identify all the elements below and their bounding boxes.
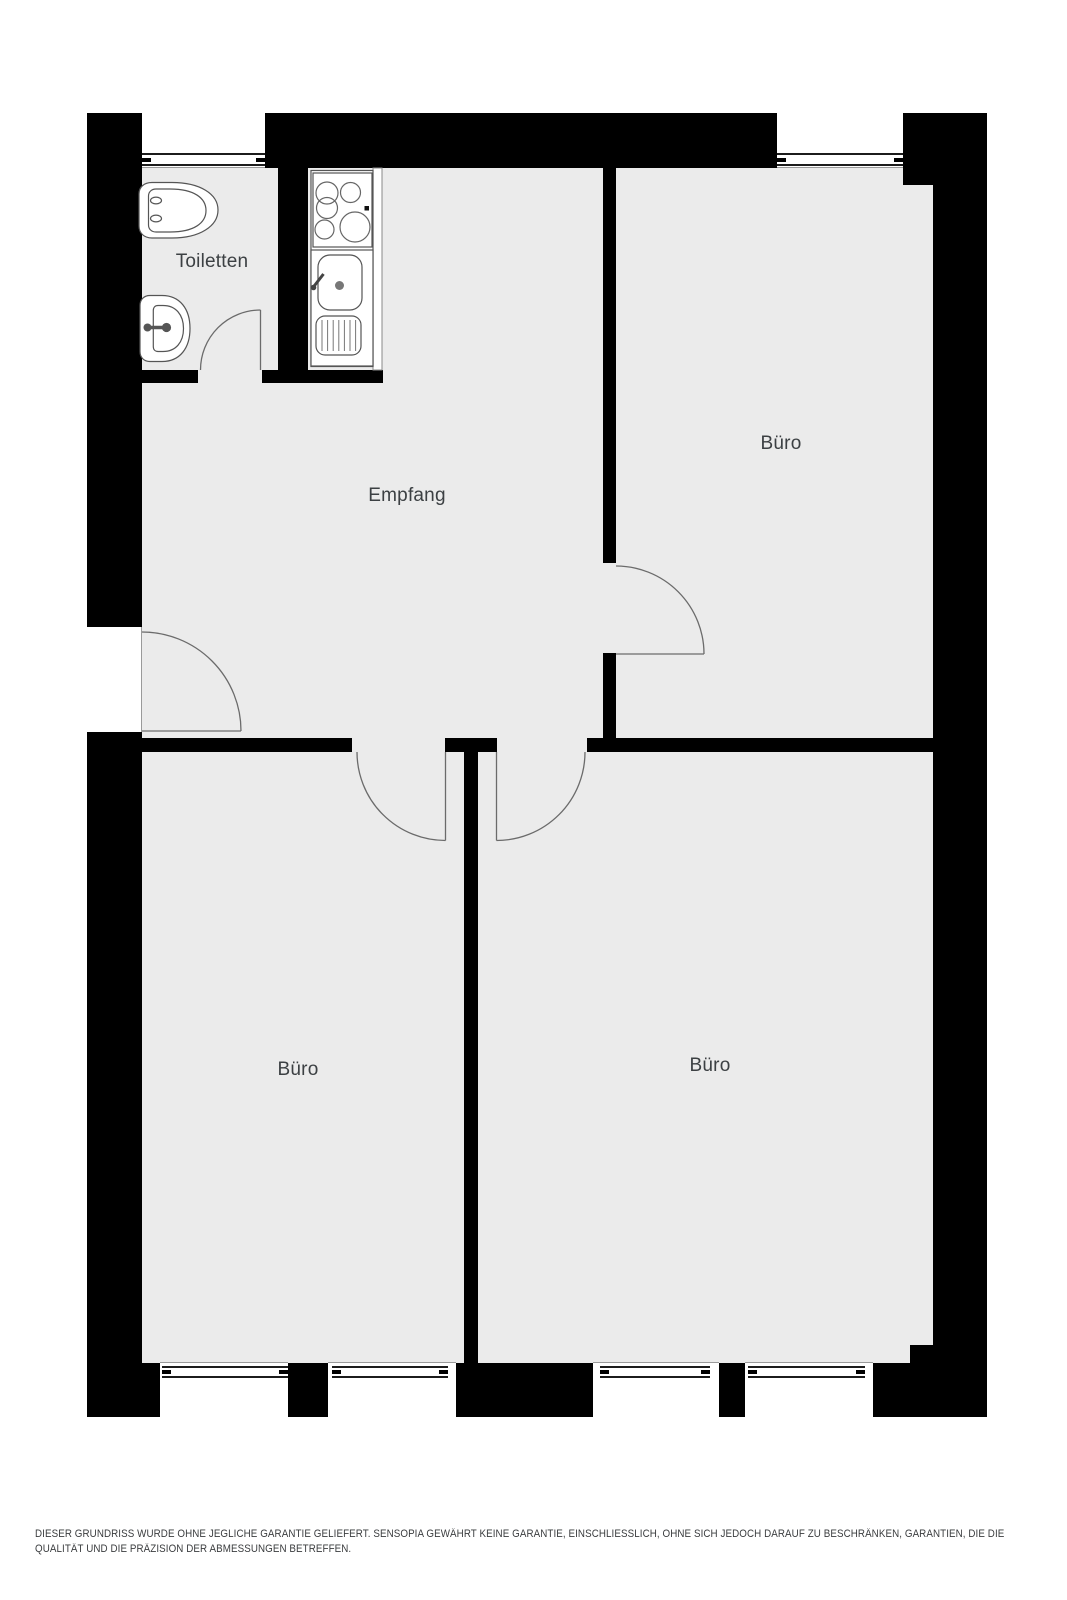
stove-icon <box>313 173 372 247</box>
door-entrance <box>142 632 241 731</box>
room-label-buero-right: Büro <box>690 1055 731 1077</box>
plan-vector-layer <box>0 0 1067 1600</box>
floorplan-page: Toiletten Empfang Büro Büro Büro DIESER … <box>0 0 1067 1600</box>
room-label-empfang: Empfang <box>368 485 445 507</box>
door-toiletten <box>201 310 261 370</box>
kitchen-sink-icon <box>311 250 373 366</box>
disclaimer-line-1: DIESER GRUNDRISS WURDE OHNE JEGLICHE GAR… <box>35 1527 1004 1542</box>
room-label-buero-top: Büro <box>761 433 802 455</box>
washbasin-icon <box>140 296 190 362</box>
door-empfang-buero <box>616 566 704 654</box>
room-label-buero-left: Büro <box>278 1059 319 1081</box>
room-label-toiletten: Toiletten <box>176 251 249 273</box>
door-buero-left <box>357 752 446 841</box>
disclaimer-text: DIESER GRUNDRISS WURDE OHNE JEGLICHE GAR… <box>35 1527 1067 1557</box>
kitchen-unit <box>311 171 373 367</box>
toilet-icon <box>139 183 218 239</box>
kitchen-partition-wall <box>373 168 382 370</box>
disclaimer-line-2: QUALITÄT UND DIE PRÄZISION DER ABMESSUNG… <box>35 1542 1004 1557</box>
door-buero-right <box>497 752 586 841</box>
